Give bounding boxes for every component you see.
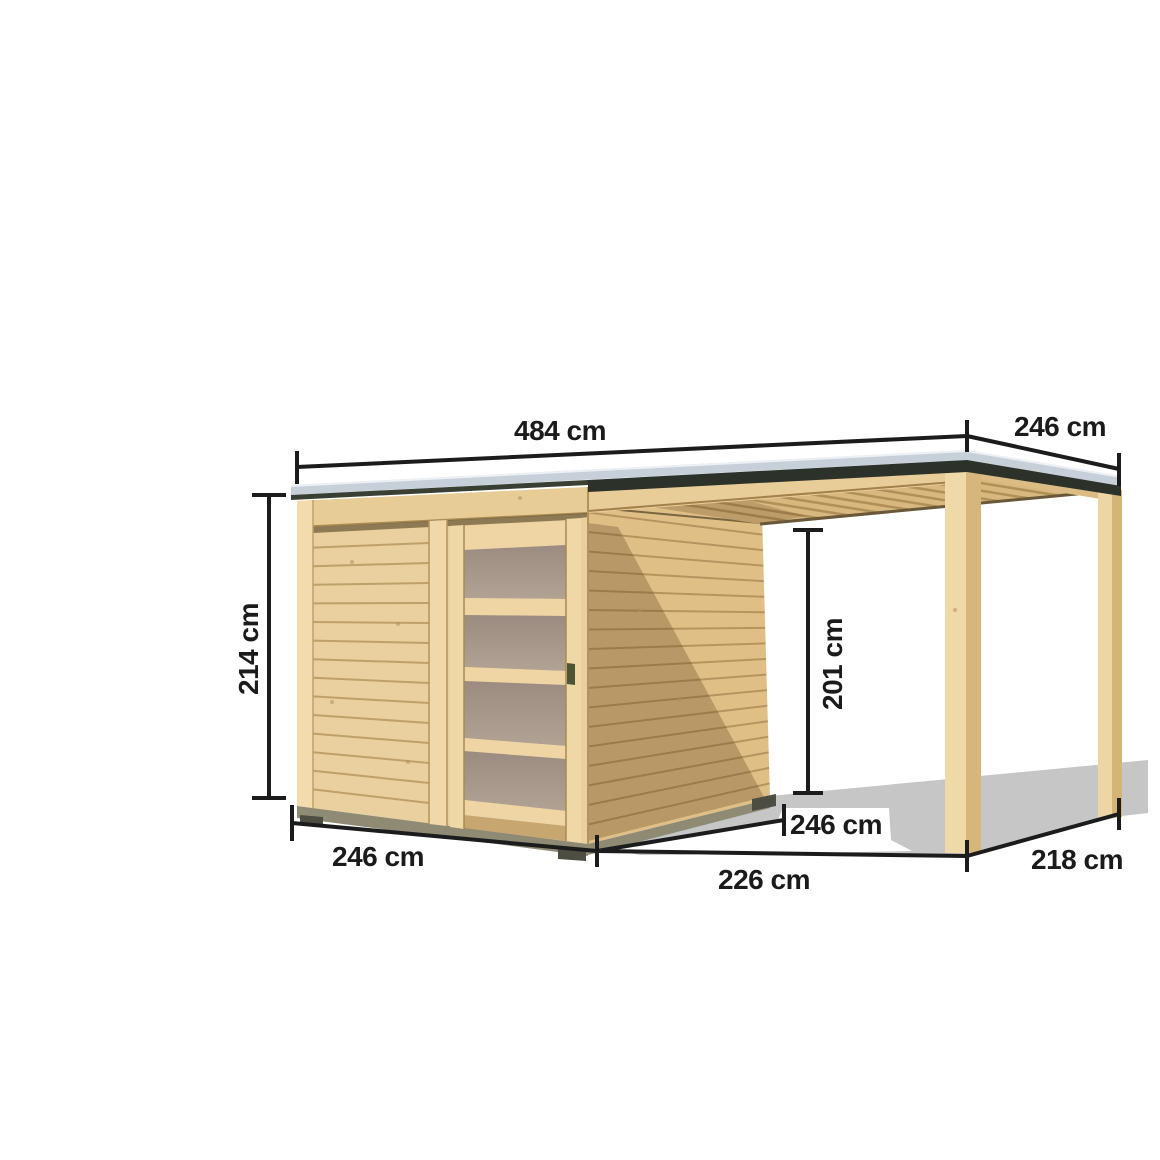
dimension-label-shed-side-depth: 246 cm xyxy=(790,809,882,840)
corner-board-right xyxy=(581,517,588,844)
sliding-door xyxy=(450,518,581,843)
post-back-side xyxy=(1112,490,1122,818)
shed-dimension-diagram: 484 cm 246 cm 214 cm 201 cm 246 cm 246 c… xyxy=(0,0,1160,1160)
shed-side-wall xyxy=(588,487,776,855)
product-image-canvas: 484 cm 246 cm 214 cm 201 cm 246 cm 246 c… xyxy=(0,0,1160,1160)
dimension-label-roof-total-width: 484 cm xyxy=(514,415,606,446)
door-rail-top xyxy=(464,521,566,550)
door-panel-1 xyxy=(464,545,566,599)
door-panel-2 xyxy=(464,615,566,671)
dimension-canopy-clear-height: 201 cm xyxy=(793,530,848,793)
door-panel-3 xyxy=(464,681,566,746)
dimension-label-wall-height: 214 cm xyxy=(233,603,264,695)
dimension-wall-height: 214 cm xyxy=(233,495,286,798)
dimension-label-canopy-clear-height: 201 cm xyxy=(817,618,848,710)
shed-front xyxy=(0,0,957,861)
post-front-side xyxy=(966,467,981,853)
door-stile-left xyxy=(450,525,464,829)
corner-trim-left xyxy=(297,500,313,808)
dimension-label-shed-front-width: 246 cm xyxy=(332,841,424,872)
dimension-label-canopy-front-width: 226 cm xyxy=(718,864,810,895)
door-jamb-trim xyxy=(429,520,447,826)
dimension-label-canopy-side-depth: 218 cm xyxy=(1031,844,1123,875)
door-rail-1 xyxy=(464,598,566,616)
post-back-face xyxy=(1098,490,1112,818)
canopy-post-front xyxy=(945,467,981,853)
dimension-label-roof-depth: 246 cm xyxy=(1014,411,1106,442)
post-front-face xyxy=(945,467,966,853)
door-handle-slot xyxy=(567,663,575,685)
canopy-post-back xyxy=(1098,490,1122,818)
